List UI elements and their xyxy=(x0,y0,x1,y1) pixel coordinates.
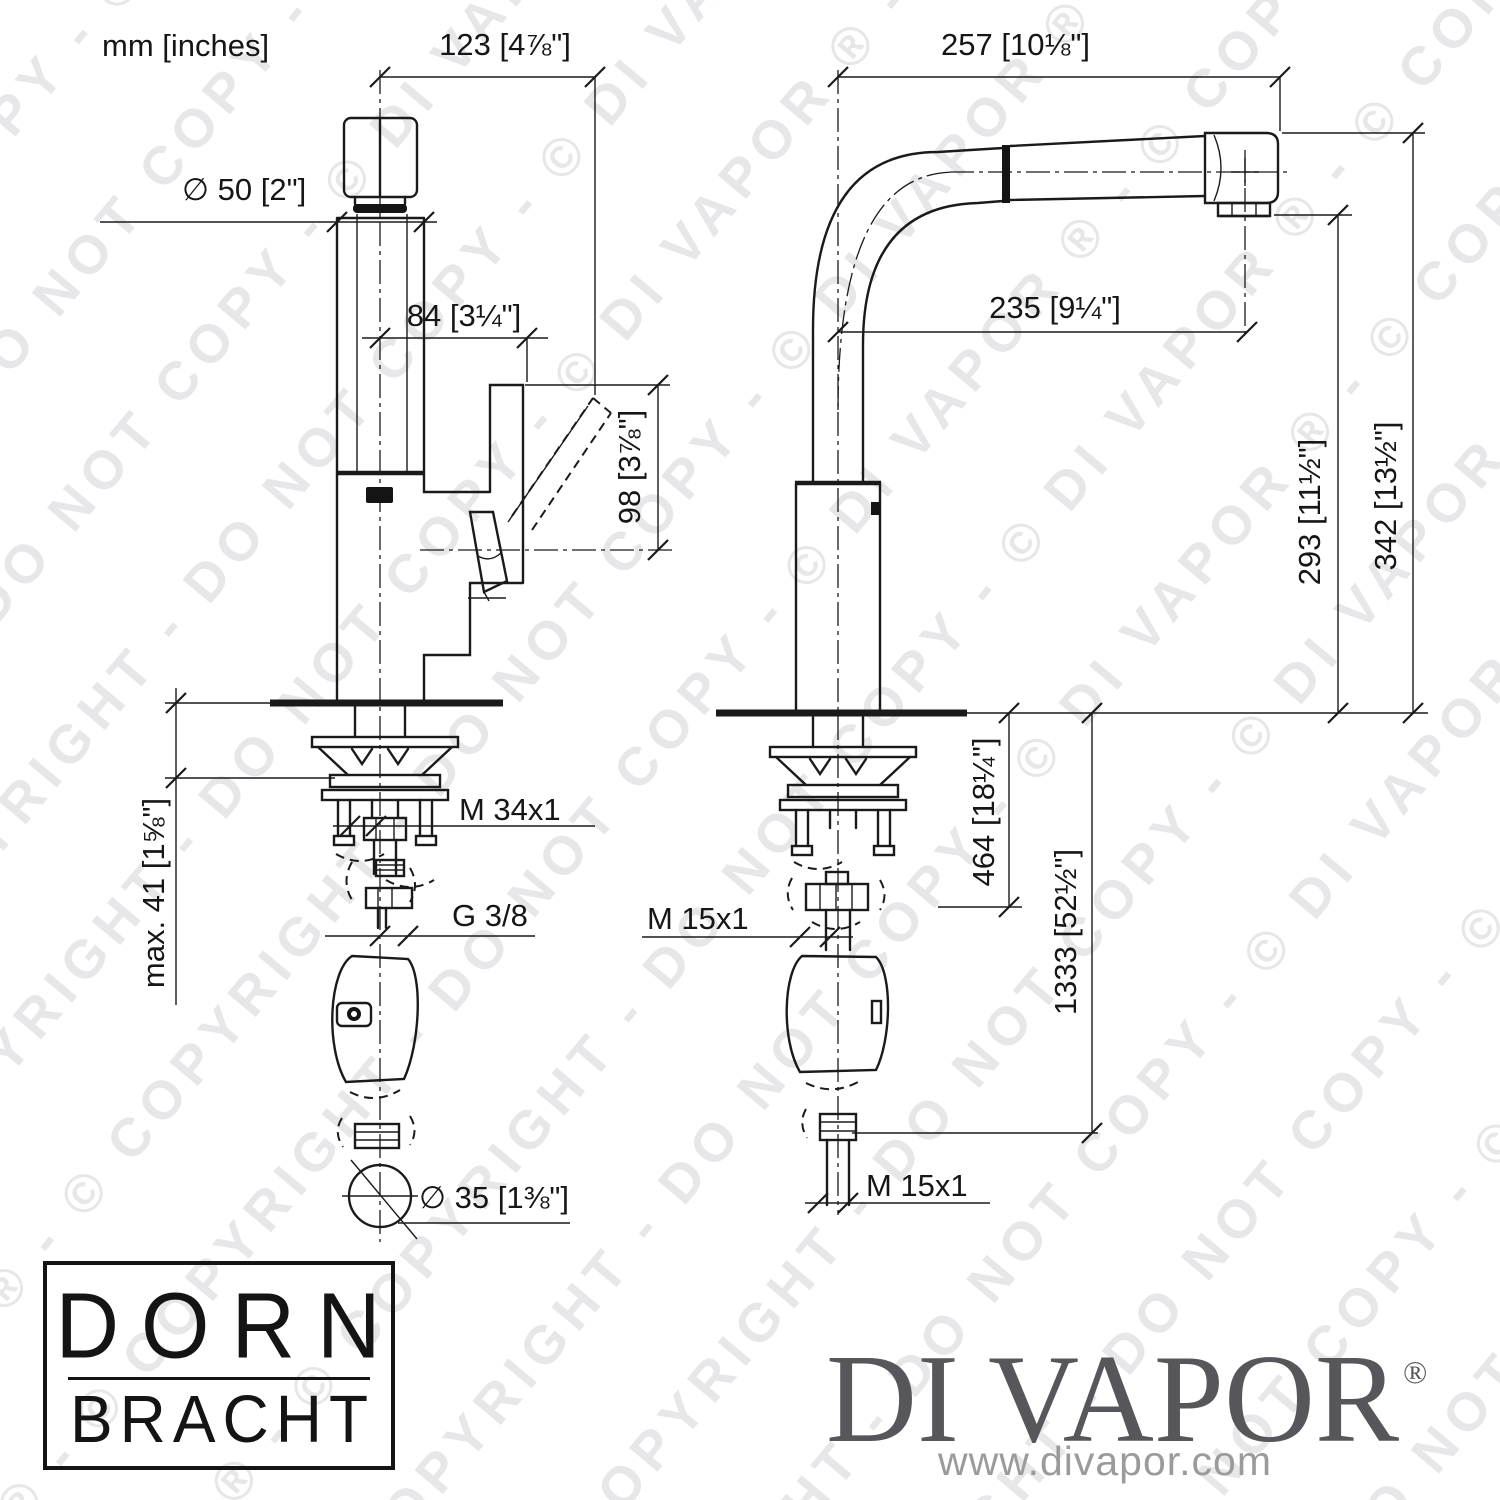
dornbracht-logo: DORN BRACHT xyxy=(43,1261,395,1470)
dornbracht-logo-line1: DORN xyxy=(55,1275,402,1376)
dim-spout-drop-label: 98 [3⅞"] xyxy=(612,410,648,524)
divapor-url: www.divapor.com xyxy=(938,1438,1272,1485)
dornbracht-logo-line2: BRACHT xyxy=(70,1382,375,1456)
dim-hose-drop-label: 464 [18¼"] xyxy=(966,738,1002,887)
right-mounting-hardware xyxy=(770,717,916,869)
thread-shank-label: M 34x1 xyxy=(459,792,561,828)
dim-hole-diameter-label: ∅ 35 [1⅜"] xyxy=(419,1180,569,1216)
dimension-lines xyxy=(100,67,1428,1223)
left-supply-connector xyxy=(347,860,416,928)
thread-hose-bottom-label: M 15x1 xyxy=(866,1168,968,1204)
dim-handle-offset-label: 84 [3¼"] xyxy=(388,298,540,334)
registered-trademark-icon: ® xyxy=(1403,1354,1427,1390)
right-hose-end xyxy=(802,1109,856,1205)
spray-head xyxy=(1205,133,1278,216)
dim-counter-thickness-label: max. 41 [1⅝"] xyxy=(136,798,172,988)
dim-base-diameter-label: ∅ 50 [2"] xyxy=(182,172,306,208)
dim-hose-length-label: 1333 [52½"] xyxy=(1048,849,1084,1015)
right-mid-connector xyxy=(788,872,885,950)
left-view-drawing xyxy=(270,70,611,1242)
dim-reach-total-label: 257 [10⅛"] xyxy=(903,27,1128,63)
dim-width-top-label: 123 [4⅞"] xyxy=(398,27,612,63)
dim-height-total-label: 342 [13½"] xyxy=(1368,422,1404,571)
dimension-ticks xyxy=(166,67,1423,1213)
left-valve-body xyxy=(332,956,417,1098)
thread-hose-mid-label: M 15x1 xyxy=(647,901,749,937)
spec-sheet-page: © COPYRIGHT - DO NOT COPY - © DI VAPOR ®… xyxy=(0,0,1500,1500)
dim-height-outlet-label: 293 [11½"] xyxy=(1292,439,1328,586)
right-view-drawing xyxy=(716,70,1290,1215)
dim-reach-outlet-label: 235 [9¼"] xyxy=(950,290,1160,326)
left-hose-end xyxy=(338,1116,418,1239)
thread-supply-label: G 3/8 xyxy=(452,898,528,934)
units-label: mm [inches] xyxy=(102,28,269,64)
